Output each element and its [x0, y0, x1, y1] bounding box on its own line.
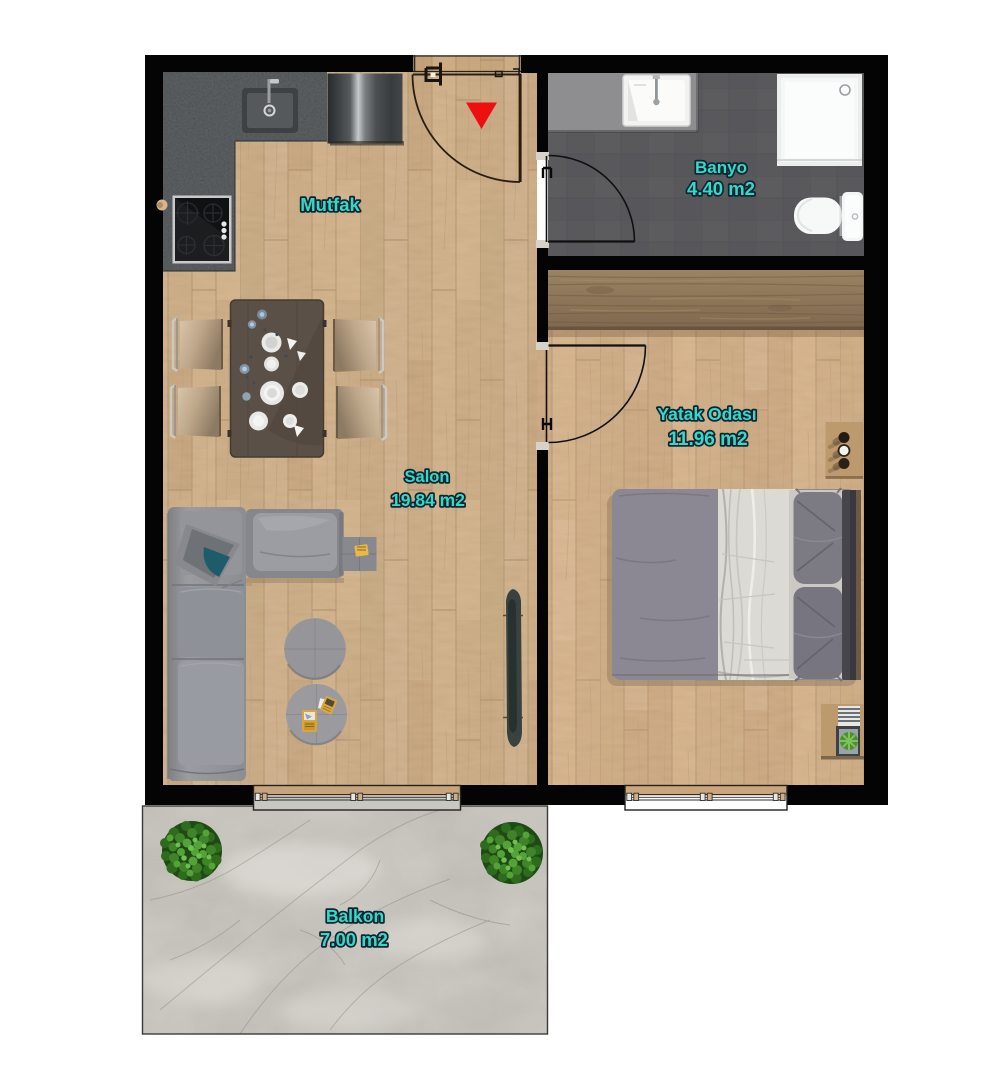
- svg-text:Yatak Odası: Yatak Odası: [657, 404, 756, 424]
- svg-text:Banyo: Banyo: [695, 158, 747, 177]
- svg-text:4.40 m2: 4.40 m2: [687, 178, 755, 199]
- svg-text:Balkon: Balkon: [326, 906, 384, 926]
- svg-text:Mutfak: Mutfak: [300, 194, 360, 215]
- svg-text:7.00 m2: 7.00 m2: [320, 929, 388, 950]
- svg-text:Salon: Salon: [405, 468, 450, 486]
- svg-text:19.84 m2: 19.84 m2: [391, 490, 465, 510]
- svg-text:11.96 m2: 11.96 m2: [668, 429, 747, 450]
